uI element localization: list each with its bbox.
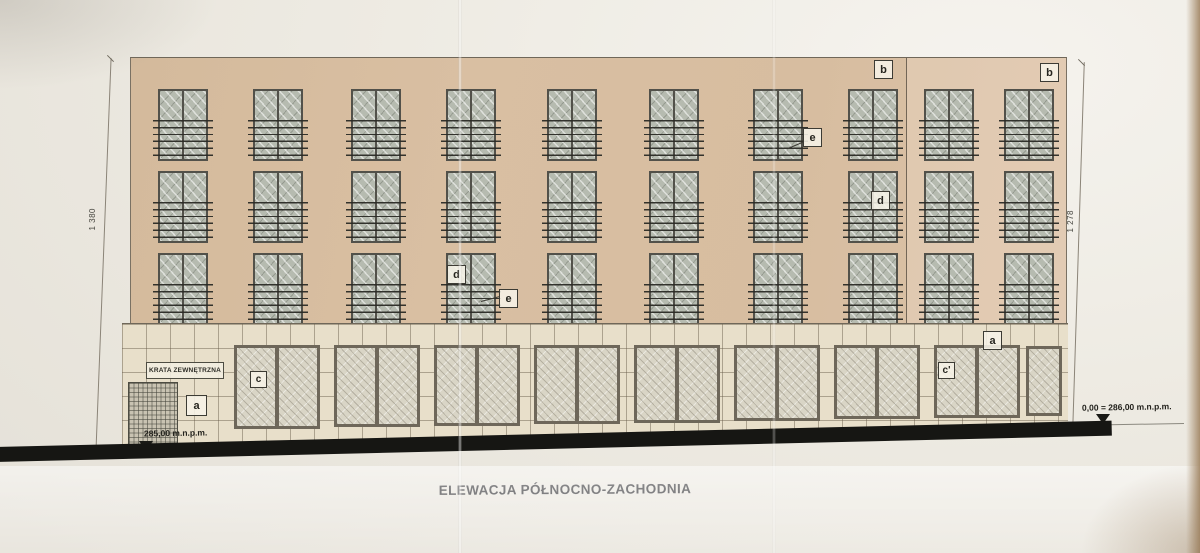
label-d-1: d	[871, 191, 890, 210]
french-balcony-railing	[153, 284, 213, 325]
grille-label: KRATA ZEWNĘTRZNA	[146, 362, 224, 379]
label-a-1: a	[186, 395, 207, 416]
storefront-window	[334, 345, 420, 427]
photo-edge-right	[1186, 0, 1200, 553]
window	[848, 89, 898, 161]
storefront-window	[534, 345, 620, 424]
window	[924, 171, 974, 243]
french-balcony-railing	[346, 120, 406, 161]
scanned-elevation-drawing: KRATA ZEWNĘTRZNA b b e d d e a a c c' 1 …	[0, 0, 1200, 553]
french-balcony-railing	[999, 284, 1059, 325]
paper-lower-shade	[0, 466, 1200, 553]
french-balcony-railing	[248, 284, 308, 325]
window	[649, 171, 699, 243]
window	[753, 171, 803, 243]
french-balcony-railing	[999, 202, 1059, 243]
label-e-1: e	[803, 128, 822, 147]
french-balcony-railing	[441, 120, 501, 161]
window	[547, 171, 597, 243]
window	[753, 89, 803, 161]
french-balcony-railing	[248, 202, 308, 243]
dimension-left-label: 1 380	[88, 208, 97, 231]
label-c: c	[250, 371, 267, 388]
window	[753, 253, 803, 325]
french-balcony-railing	[843, 120, 903, 161]
storefront-window-narrow	[1026, 346, 1062, 416]
photo-shadow-bottom-right	[1080, 463, 1200, 553]
window	[446, 253, 496, 325]
label-a-2: a	[983, 331, 1002, 350]
french-balcony-railing	[919, 202, 979, 243]
label-c-prime: c'	[938, 362, 955, 379]
window	[351, 171, 401, 243]
storefront-window	[834, 345, 920, 419]
french-balcony-railing	[748, 202, 808, 243]
storefront-window	[934, 345, 1020, 418]
french-balcony-railing	[153, 202, 213, 243]
french-balcony-railing	[441, 202, 501, 243]
french-balcony-railing	[644, 202, 704, 243]
label-d-2: d	[447, 265, 466, 284]
french-balcony-railing	[346, 284, 406, 325]
window	[547, 89, 597, 161]
window	[924, 89, 974, 161]
window	[649, 89, 699, 161]
storefront-window	[434, 345, 520, 426]
level-marker-right-text: 0,00 = 286,00 m.n.p.m.	[1082, 401, 1172, 413]
french-balcony-railing	[644, 120, 704, 161]
window	[351, 89, 401, 161]
dimension-line-left	[95, 58, 111, 452]
window	[848, 253, 898, 325]
window	[1004, 253, 1054, 325]
label-b-2: b	[1040, 63, 1059, 82]
dimension-right-label: 1 278	[1066, 210, 1075, 233]
dimension-line-right	[1072, 62, 1085, 430]
storefront-window	[634, 345, 720, 423]
french-balcony-railing	[542, 120, 602, 161]
window	[253, 89, 303, 161]
window	[446, 171, 496, 243]
french-balcony-railing	[542, 202, 602, 243]
window	[158, 253, 208, 325]
window	[1004, 89, 1054, 161]
label-e-2: e	[499, 289, 518, 308]
french-balcony-railing	[153, 120, 213, 161]
storefront-window	[234, 345, 320, 429]
french-balcony-railing	[346, 202, 406, 243]
label-b-1: b	[874, 60, 893, 79]
facade-joint-line	[906, 58, 907, 326]
french-balcony-railing	[748, 120, 808, 161]
window	[158, 171, 208, 243]
french-balcony-railing	[644, 284, 704, 325]
window	[351, 253, 401, 325]
elevation-title: ELEWACJA PÓŁNOCNO-ZACHODNIA	[370, 481, 760, 499]
french-balcony-railing	[441, 284, 501, 325]
french-balcony-railing	[999, 120, 1059, 161]
window	[446, 89, 496, 161]
french-balcony-railing	[919, 284, 979, 325]
french-balcony-railing	[748, 284, 808, 325]
window	[253, 171, 303, 243]
level-marker-left-text: 285,00 m.n.p.m.	[144, 427, 207, 438]
french-balcony-railing	[248, 120, 308, 161]
french-balcony-railing	[919, 120, 979, 161]
building-facade	[130, 57, 1067, 326]
window	[1004, 171, 1054, 243]
window	[253, 253, 303, 325]
window	[649, 253, 699, 325]
window	[924, 253, 974, 325]
window	[547, 253, 597, 325]
french-balcony-railing	[843, 284, 903, 325]
window	[158, 89, 208, 161]
french-balcony-railing	[542, 284, 602, 325]
storefront-window	[734, 345, 820, 421]
